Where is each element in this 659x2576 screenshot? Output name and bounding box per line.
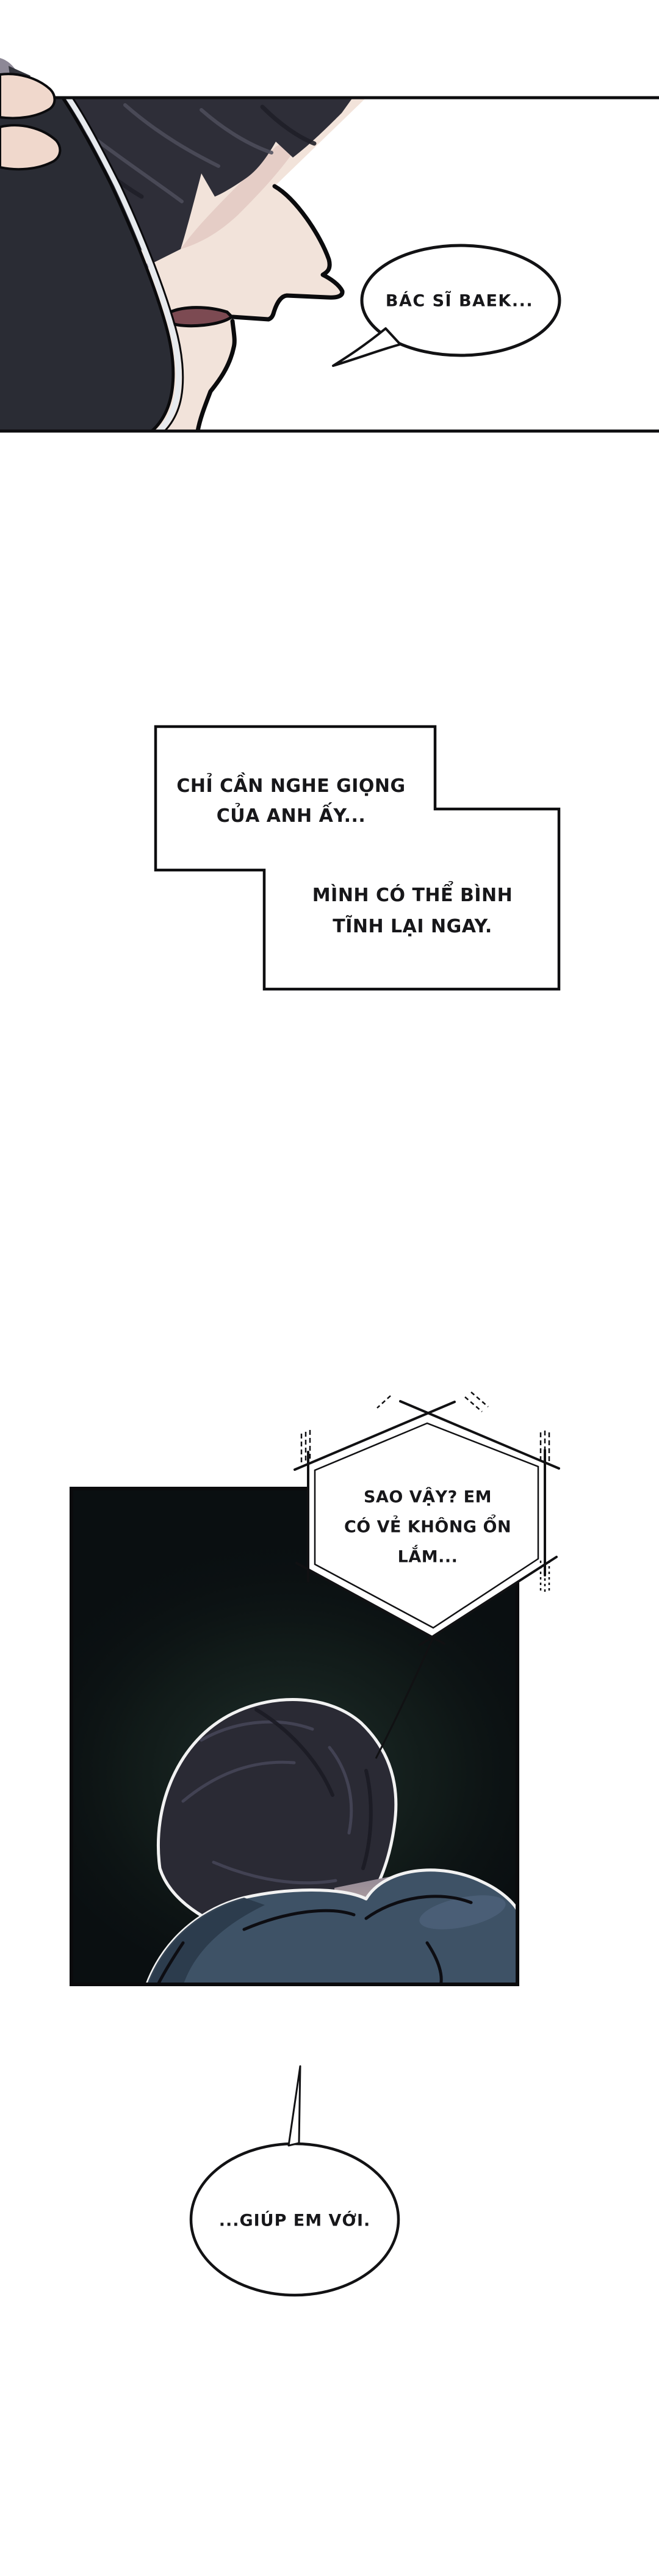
radio-ticks-apex — [377, 1392, 488, 1412]
thought-box-1-line-1: CHỈ CẦN NGHE GIỌNG — [176, 771, 405, 801]
phone-voice-bubble-text: SAO VẬY? EM CÓ VẺ KHÔNG ỔN LẮM... — [344, 1482, 511, 1572]
thought-box-2-line-2: TĨNH LẠI NGAY. — [312, 911, 513, 942]
plea-bubble-text: ...GIÚP EM VỚI. — [219, 2211, 371, 2230]
thought-box-1-text: CHỈ CẦN NGHE GIỌNG CỦA ANH ẤY... — [176, 771, 405, 831]
comic-artwork — [0, 0, 659, 2576]
thought-boxes-outline — [156, 727, 559, 989]
thought-box-1-line-2: CỦA ANH ẤY... — [176, 801, 405, 831]
comic-page: BÁC SĨ BAEK... CHỈ CẦN NGHE GIỌNG CỦA AN… — [0, 0, 659, 2576]
plea-bubble-tail — [289, 2066, 300, 2146]
phone-voice-line-2: CÓ VẺ KHÔNG ỔN — [344, 1512, 511, 1542]
phone-voice-line-3: LẮM... — [344, 1542, 511, 1572]
thought-boxes — [156, 727, 559, 989]
speech-bubble-doctor-text: BÁC SĨ BAEK... — [386, 292, 533, 311]
thought-box-2-text: MÌNH CÓ THỂ BÌNH TĨNH LẠI NGAY. — [312, 880, 513, 942]
panel-top-closeup — [0, 58, 659, 439]
thought-box-2-line-1: MÌNH CÓ THỂ BÌNH — [312, 880, 513, 911]
phone-voice-line-1: SAO VẬY? EM — [344, 1482, 511, 1512]
plea-bubble — [191, 2066, 398, 2295]
finger-tip — [0, 74, 55, 118]
radio-ticks-right-top — [541, 1431, 549, 1463]
speech-bubble-doctor-tail — [333, 328, 400, 366]
